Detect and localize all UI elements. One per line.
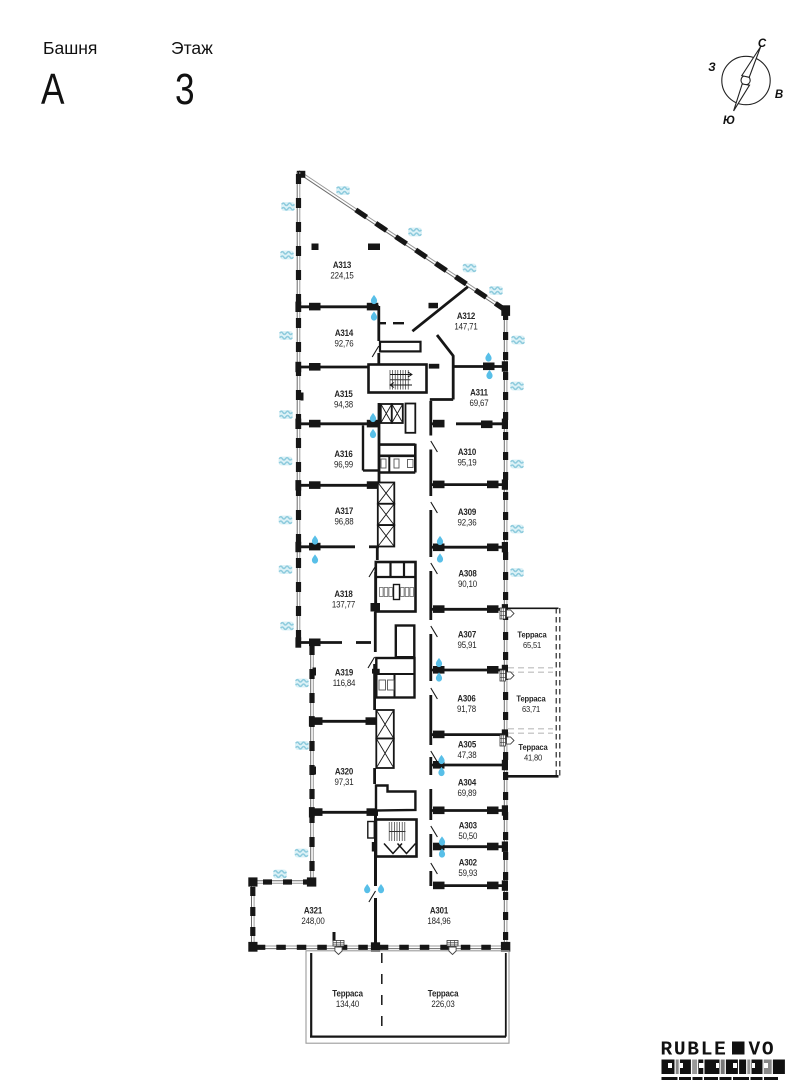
svg-text:А320: А320 <box>335 766 354 777</box>
svg-text:69,67: 69,67 <box>470 398 489 409</box>
svg-text:Терраса: Терраса <box>428 988 459 999</box>
svg-text:95,91: 95,91 <box>458 640 477 651</box>
svg-text:92,36: 92,36 <box>458 517 477 528</box>
svg-text:А314: А314 <box>335 328 354 339</box>
svg-text:Терраса: Терраса <box>516 694 546 704</box>
svg-text:А315: А315 <box>334 389 353 400</box>
svg-text:А308: А308 <box>458 568 477 579</box>
svg-text:147,71: 147,71 <box>454 321 478 332</box>
svg-text:Терраса: Терраса <box>332 988 363 999</box>
svg-text:96,99: 96,99 <box>334 459 353 470</box>
svg-text:А301: А301 <box>430 905 449 916</box>
svg-text:92,76: 92,76 <box>335 338 354 349</box>
svg-text:А321: А321 <box>304 905 323 916</box>
svg-text:224,15: 224,15 <box>330 270 354 281</box>
svg-text:А302: А302 <box>459 857 478 868</box>
svg-text:41,80: 41,80 <box>524 753 543 763</box>
svg-text:95,19: 95,19 <box>458 457 477 468</box>
svg-text:А318: А318 <box>334 589 353 600</box>
svg-text:69,89: 69,89 <box>458 788 477 799</box>
svg-text:А306: А306 <box>457 693 476 704</box>
svg-text:184,96: 184,96 <box>427 916 451 927</box>
svg-text:А309: А309 <box>458 507 477 518</box>
svg-text:248,00: 248,00 <box>301 916 325 927</box>
svg-text:65,51: 65,51 <box>523 641 542 651</box>
svg-text:А303: А303 <box>459 820 478 831</box>
svg-text:47,38: 47,38 <box>458 750 477 761</box>
svg-text:В: В <box>775 89 783 101</box>
svg-text:А312: А312 <box>457 311 476 322</box>
svg-text:226,03: 226,03 <box>431 999 455 1010</box>
svg-text:А316: А316 <box>334 449 353 460</box>
svg-text:А304: А304 <box>458 777 477 788</box>
svg-text:VO: VO <box>749 1039 776 1061</box>
svg-text:Терраса: Терраса <box>517 630 547 640</box>
svg-text:134,40: 134,40 <box>336 999 360 1010</box>
svg-text:97,31: 97,31 <box>335 777 354 788</box>
svg-text:RUBLE: RUBLE <box>661 1039 728 1061</box>
svg-text:С: С <box>758 38 767 50</box>
svg-text:Терраса: Терраса <box>518 743 548 753</box>
svg-text:А310: А310 <box>458 447 477 458</box>
svg-text:94,38: 94,38 <box>334 399 353 410</box>
svg-text:91,78: 91,78 <box>457 704 476 715</box>
svg-text:50,50: 50,50 <box>458 831 477 842</box>
svg-text:А317: А317 <box>335 506 354 517</box>
svg-text:Ю: Ю <box>723 115 735 127</box>
svg-text:А307: А307 <box>458 629 477 640</box>
svg-text:А313: А313 <box>333 260 352 271</box>
svg-text:3: 3 <box>175 65 195 114</box>
svg-text:116,84: 116,84 <box>333 678 356 689</box>
svg-text:96,88: 96,88 <box>335 516 354 527</box>
svg-text:З: З <box>708 62 716 74</box>
svg-text:А319: А319 <box>335 667 354 678</box>
svg-text:А311: А311 <box>470 387 488 398</box>
svg-text:Этаж: Этаж <box>171 38 213 58</box>
svg-text:63,71: 63,71 <box>522 705 541 715</box>
svg-text:59,93: 59,93 <box>458 868 477 879</box>
svg-text:137,77: 137,77 <box>332 599 356 610</box>
svg-text:Башня: Башня <box>43 38 97 58</box>
svg-text:А305: А305 <box>458 739 477 750</box>
svg-text:90,10: 90,10 <box>458 579 477 590</box>
svg-text:А: А <box>41 65 65 114</box>
